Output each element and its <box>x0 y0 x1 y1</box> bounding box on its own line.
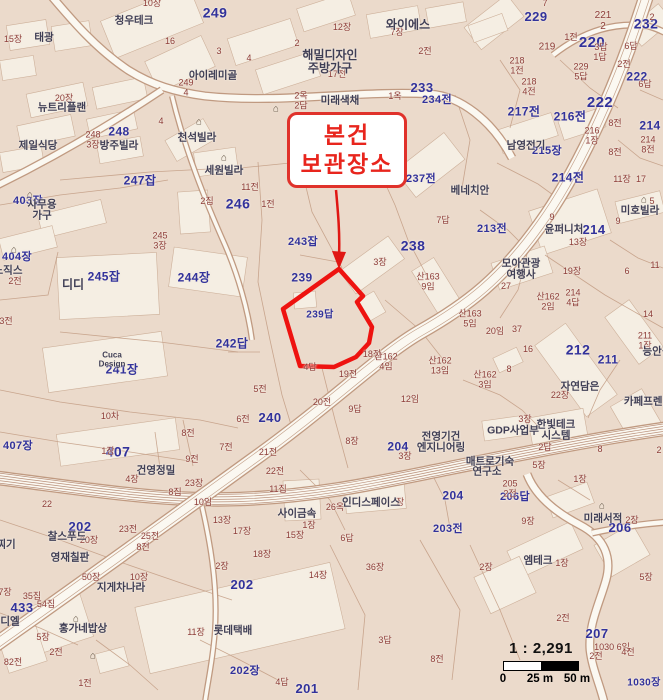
map-labels-layer: 249229220232233234전238237전213전214214전217… <box>0 0 663 700</box>
lot-number-label: 246 <box>226 196 251 211</box>
place-name-label: 한빛테크 시스템 <box>537 420 576 443</box>
sub-lot-label: 4전 <box>621 648 634 658</box>
lot-number-label: 202 <box>69 520 92 534</box>
lot-number-label: 433 <box>11 601 34 615</box>
place-name-label: 지게차나라 <box>97 582 145 593</box>
sub-lot-label: 216 1장 <box>584 126 599 145</box>
sub-lot-label: 8전 <box>136 543 149 553</box>
place-name-label: 매트로기숙 <box>466 456 514 467</box>
scale-tick-25: 25 m <box>527 673 553 685</box>
scale-ratio: 1 : 2,291 <box>502 640 580 657</box>
sub-lot-label: 8장 <box>345 437 358 447</box>
lot-number-label: 204 <box>387 441 408 454</box>
lot-number-label: 207 <box>586 627 609 641</box>
sub-lot-label: 11집 <box>269 485 287 495</box>
sub-lot-label: 3장 <box>518 415 531 425</box>
place-name-label: 세원빌라 <box>205 165 244 176</box>
sub-lot-label: 5장 <box>36 633 49 643</box>
sub-lot-label: 219 <box>539 43 556 54</box>
lot-number-label: 407장 <box>3 441 33 453</box>
sub-lot-label: 14 <box>643 310 653 320</box>
sub-lot-label: 214 8전 <box>640 135 655 154</box>
lot-number-label: 247잡 <box>124 175 157 188</box>
sub-lot-label: 25전 <box>141 532 159 542</box>
sub-lot-label: 13장 <box>569 238 587 248</box>
place-name-label: 방주빌라 <box>100 140 139 151</box>
place-name-label: 남영전기 <box>507 140 546 151</box>
sub-lot-label: 2전 <box>617 60 630 70</box>
sub-lot-label: 36장 <box>366 563 384 573</box>
sub-lot-label: 19전 <box>339 370 357 380</box>
sub-lot-label: 3답 <box>378 636 391 646</box>
sub-lot-label: 산162 3임 <box>473 370 496 389</box>
lot-number-label: 238 <box>401 238 426 253</box>
place-name-label: 미래서적 <box>584 513 623 524</box>
lot-number-label: 212 <box>566 342 591 357</box>
sub-lot-label: 1장 <box>573 475 586 485</box>
building-icon: ⌂ <box>196 118 202 129</box>
place-name-label: 제일식당 <box>19 140 58 151</box>
sub-lot-label: 1030 6임 <box>594 643 630 653</box>
sub-lot-label: 23장 <box>185 479 203 489</box>
sub-lot-label: 3답 <box>594 43 607 53</box>
sub-lot-label: 7 <box>542 0 547 9</box>
place-name-label: 인디스페이스 <box>342 497 400 508</box>
scale-bar: 1 : 2,291 0 25 m 50 m <box>497 640 593 687</box>
place-name-label: 전영기건 엔지니어링 <box>417 432 465 455</box>
sub-lot-label: 4답 <box>275 678 288 688</box>
lot-number-label: 407 <box>106 444 131 459</box>
place-name-label: 홍가네밥상 <box>59 623 107 634</box>
place-name-label: Cuca Design <box>99 351 126 368</box>
sub-lot-label: 205 2전 <box>502 479 517 498</box>
sub-lot-label: 27 <box>501 282 511 292</box>
place-name-label: 태광 <box>34 32 53 43</box>
sub-lot-label: 22 <box>42 500 52 510</box>
lot-number-label: 244장 <box>178 272 211 285</box>
scale-seg-black <box>541 662 578 670</box>
lot-number-label: 404장 <box>2 252 32 264</box>
lot-number-label: 249 <box>203 5 228 20</box>
place-name-label: GDP사업부 <box>487 425 539 436</box>
sub-lot-label: 20장 <box>55 94 73 104</box>
place-name-label: 찌기 <box>0 539 16 550</box>
lot-number-label: 216전 <box>554 111 587 124</box>
sub-lot-label: 1답 <box>593 53 606 63</box>
sub-lot-label: 13장 <box>213 516 231 526</box>
lot-number-label: 220 <box>579 35 605 51</box>
lot-number-label: 245잡 <box>88 271 121 284</box>
sub-lot-label: 20전 <box>313 398 331 408</box>
sub-lot-label: 6답 <box>340 534 353 544</box>
lot-number-label: 233 <box>411 81 434 95</box>
building-icon: ⌂ <box>641 196 647 207</box>
lot-number-label: 201 <box>296 682 319 696</box>
sub-lot-label: 2답 <box>538 443 551 453</box>
sub-lot-label: 2장 <box>625 516 638 526</box>
sub-lot-label: 18장 <box>253 550 271 560</box>
scale-tick-50: 50 m <box>564 673 590 685</box>
place-name-label: 능안길 <box>643 346 663 357</box>
sub-lot-label: 1전 <box>261 200 274 210</box>
place-name-label: 찰스푸드 <box>48 531 87 542</box>
sub-lot-label: 7답 <box>436 216 449 226</box>
sub-lot-label: 6 <box>624 267 629 277</box>
sub-lot-label: 5장 <box>532 461 545 471</box>
sub-lot-label: 2 <box>656 446 661 456</box>
sub-lot-label: 9전 <box>185 455 198 465</box>
sub-lot-label: 15장 <box>286 531 304 541</box>
sub-lot-label: 2장 <box>215 562 228 572</box>
lot-number-label: 239 <box>291 272 312 285</box>
sub-lot-label: 7장 <box>0 588 12 598</box>
lot-number-label: 215장 <box>532 146 562 158</box>
building-icon: ⌂ <box>73 615 79 626</box>
place-name-label: 아이레미골 <box>189 70 237 81</box>
building-icon: ⌂ <box>11 246 17 257</box>
sub-lot-label: 229 5답 <box>573 62 588 81</box>
lot-number-label: 241장 <box>106 364 139 377</box>
place-name-label: 미래색채 <box>321 95 360 106</box>
place-name-label: 연구소 <box>473 466 502 477</box>
sub-lot-label: 23전 <box>119 525 137 535</box>
sub-lot-label: 4 <box>158 117 163 127</box>
lot-number-label: 242답 <box>216 338 249 351</box>
sub-lot-label: 4답 <box>303 363 316 373</box>
lot-number-label: 243잡 <box>288 237 318 249</box>
sub-lot-label: 8전 <box>430 655 443 665</box>
sub-lot-label: 산162 13임 <box>428 356 451 375</box>
sub-lot-label: 82전 <box>4 658 22 668</box>
building-icon: ⌂ <box>599 502 605 513</box>
place-name-label: 노직스 <box>0 265 22 276</box>
sub-lot-label: 2옥 2담 <box>294 91 307 110</box>
sub-lot-label: 11 <box>650 261 659 271</box>
place-name-label: 롯데택배 <box>214 625 253 636</box>
place-name-label: 카페프렌치 <box>624 396 663 407</box>
sub-lot-label: 2집 <box>200 197 213 207</box>
place-name-label: 청우테크 <box>115 15 154 26</box>
lot-number-label: 211 <box>598 354 619 367</box>
lot-number-label: 222 <box>626 71 647 84</box>
sub-lot-label: 2 <box>294 39 299 49</box>
building-icon: ⌂ <box>27 191 33 202</box>
scale-tick-0: 0 <box>500 673 506 685</box>
callout-box: 본건 보관장소 <box>287 112 407 188</box>
sub-lot-label: 7장 <box>390 28 403 38</box>
sub-lot-label: 50장 <box>82 573 100 583</box>
sub-lot-label: 2전 <box>556 614 569 624</box>
place-name-label: 베네치안 <box>451 185 490 196</box>
sub-lot-label: 16 <box>523 345 533 355</box>
sub-lot-label: 9 <box>615 217 620 227</box>
sub-lot-label: 10임 <box>194 498 212 508</box>
sub-lot-label: 2 <box>649 13 654 23</box>
sub-lot-label: 37 <box>512 325 522 335</box>
place-name-label: 자연담은 <box>561 381 600 392</box>
lot-number-label: 214 <box>583 223 606 237</box>
sub-lot-label: 2장 <box>479 563 492 573</box>
sub-lot-label: 22장 <box>551 391 569 401</box>
sub-lot-label: 17장 <box>233 527 251 537</box>
sub-lot-label: 2전 <box>418 47 431 57</box>
lot-number-label: 248 <box>108 126 129 139</box>
lot-number-label: 240 <box>259 411 282 425</box>
sub-lot-label: 8 <box>597 445 602 455</box>
sub-lot-label: 8전 <box>181 429 194 439</box>
place-name-label: 해밀디자인 주방가구 <box>302 49 357 75</box>
sub-lot-label: 3장 <box>373 258 386 268</box>
sub-lot-label: 19장 <box>563 267 581 277</box>
sub-lot-label: 11장 <box>187 628 205 638</box>
scale-seg-white <box>504 662 541 670</box>
sub-lot-label: 21전 <box>259 448 277 458</box>
sub-lot-label: 2전 <box>8 277 21 287</box>
scale-bar-graphic <box>503 661 579 671</box>
sub-lot-label: 산163 9임 <box>416 272 439 291</box>
lot-number-label: 237전 <box>406 174 436 186</box>
place-name-label: 뉴트리플랜 <box>38 102 86 113</box>
place-name-label: 천석빌라 <box>178 132 217 143</box>
sub-lot-label: 3전 <box>0 317 13 327</box>
place-name-label: 모아관광 여행사 <box>502 259 541 282</box>
lot-number-label: 239답 <box>306 311 334 322</box>
callout-text: 본건 보관장소 <box>301 121 394 180</box>
building-icon: ⌂ <box>273 105 279 116</box>
sub-lot-label: 14장 <box>309 571 327 581</box>
sub-lot-label: 1옥 <box>388 92 401 102</box>
sub-lot-label: 211 1장 <box>638 331 652 350</box>
sub-lot-label: 245 3장 <box>152 231 167 250</box>
lot-number-label: 229 <box>525 10 548 24</box>
lot-number-label: 202장 <box>230 666 260 678</box>
building-icon: ⌂ <box>221 154 227 165</box>
sub-lot-label: 9답 <box>348 405 361 415</box>
place-name-label: 엠테크 <box>524 555 553 566</box>
lot-number-label: 217전 <box>508 106 541 119</box>
sub-lot-label: 11전 <box>241 183 259 193</box>
sub-lot-label: 9 <box>549 213 554 223</box>
sub-lot-label: 6전 <box>236 415 249 425</box>
lot-number-label: 213전 <box>477 224 507 236</box>
sub-lot-label: 4장 <box>125 475 138 485</box>
sub-lot-label: 12임 <box>401 395 419 405</box>
sub-lot-label: 22전 <box>266 467 284 477</box>
place-name-label: 건영정밀 <box>137 465 176 476</box>
sub-lot-label: 10차 <box>101 412 119 422</box>
place-name-label: 디엘 <box>0 616 19 627</box>
sub-lot-label: 2전 <box>49 648 62 658</box>
place-name-label: 윤퍼니처 <box>545 224 584 235</box>
lot-number-label: 1030장 <box>627 679 660 690</box>
lot-number-label: 214전 <box>552 172 585 185</box>
lot-number-label: 403장 <box>13 196 43 208</box>
sub-lot-label: 5전 <box>253 385 266 395</box>
place-name-label: 사이금속 <box>278 508 317 519</box>
sub-lot-label: 7전 <box>219 443 232 453</box>
sub-lot-label: 1전 <box>78 679 91 689</box>
sub-lot-label: 214 4답 <box>565 288 580 307</box>
sub-lot-label: 8 <box>506 365 511 375</box>
lot-number-label: 204 <box>442 490 463 503</box>
lot-number-label: 214 <box>639 120 660 133</box>
sub-lot-label: 3 <box>216 47 221 57</box>
lot-number-label: 206 <box>609 521 632 535</box>
sub-lot-label: 산163 5임 <box>458 309 481 328</box>
sub-lot-label: 17 <box>636 175 646 185</box>
place-name-label: 사무용 가구 <box>28 200 57 223</box>
sub-lot-label: 1전 <box>564 33 577 43</box>
sub-lot-label: 218 4전 <box>521 77 536 96</box>
sub-lot-label: 218 1전 <box>509 56 524 75</box>
place-name-label: 미호빌라 <box>621 205 660 216</box>
sub-lot-label: 8집 <box>168 488 181 498</box>
lot-number-label: 202 <box>231 578 254 592</box>
place-name-label: 디디 <box>62 279 84 292</box>
sub-lot-label: 6답 <box>638 80 651 90</box>
sub-lot-label: 11장 <box>613 175 631 185</box>
sub-lot-label: 4 <box>246 54 251 64</box>
lot-number-label: 232 <box>634 16 659 31</box>
sub-lot-label: 16 <box>165 37 175 47</box>
sub-lot-label: 1장 <box>555 559 568 569</box>
sub-lot-label: 10장 <box>130 573 148 583</box>
sub-lot-label: 15장 <box>4 35 22 45</box>
sub-lot-label: 20장 <box>80 536 98 546</box>
sub-lot-label: 26옥 <box>326 503 344 513</box>
sub-lot-label: 5 <box>649 197 654 207</box>
scale-ticks: 0 25 m 50 m <box>497 673 593 687</box>
sub-lot-label: 1장 <box>302 521 315 531</box>
sub-lot-label: 산162 4임 <box>374 352 397 371</box>
sub-lot-label: 35집 <box>23 592 41 602</box>
sub-lot-label: 6답 <box>624 42 637 52</box>
sub-lot-label: 5장 <box>639 573 652 583</box>
sub-lot-label: 20임 <box>486 327 504 337</box>
sub-lot-label: 12장 <box>333 23 351 33</box>
sub-lot-label: 9장 <box>521 517 534 527</box>
building-icon: ⌂ <box>90 652 96 663</box>
sub-lot-label: 8전 <box>608 148 621 158</box>
sub-lot-label: 1장 <box>101 447 114 457</box>
lot-number-label: 222 <box>587 95 613 111</box>
sub-lot-label: 249 4 <box>178 78 193 97</box>
sub-lot-label: 산162 2임 <box>536 292 559 311</box>
place-name-label: 와이에스 <box>386 19 430 32</box>
sub-lot-label: 18전 <box>363 350 381 360</box>
sub-lot-label: 17전 <box>328 70 346 80</box>
sub-lot-label: 10장 <box>143 0 161 9</box>
sub-lot-label: 8전 <box>608 119 621 129</box>
lot-number-label: 203전 <box>433 524 463 536</box>
lot-number-label: 234전 <box>422 95 452 107</box>
cadastral-map[interactable]: 249229220232233234전238237전213전214214전217… <box>0 0 663 700</box>
place-name-label: 영재칠판 <box>51 552 90 563</box>
lot-number-label: 206답 <box>500 492 530 504</box>
sub-lot-label: 54집 <box>37 600 55 610</box>
sub-lot-label: 3장 <box>398 452 411 462</box>
sub-lot-label: 장 <box>396 498 404 508</box>
sub-lot-label: 248 3장 <box>85 130 100 149</box>
sub-lot-label: 221 2 <box>595 11 612 33</box>
